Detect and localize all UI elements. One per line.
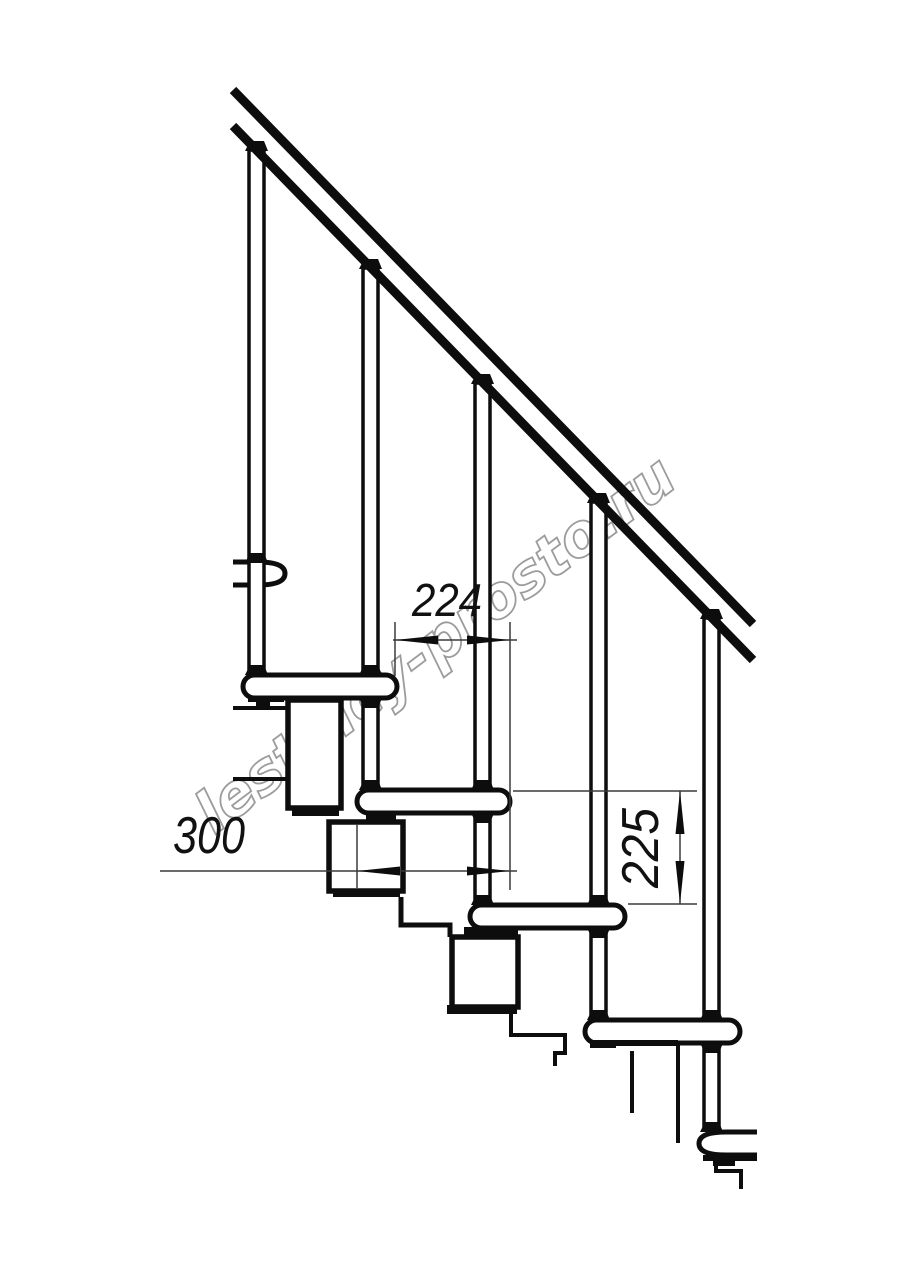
module-connector (447, 1005, 517, 1014)
module-tab (464, 927, 518, 937)
tread-6 (699, 1132, 757, 1155)
baluster-5 (704, 618, 719, 1020)
support-module (452, 937, 518, 1007)
baluster-4 (591, 502, 606, 905)
dimension-label-step-run: 224 (411, 574, 482, 626)
tread-bolt (704, 1043, 719, 1130)
module-connector (333, 889, 400, 897)
module-tab (616, 1040, 678, 1046)
tread-5 (585, 1020, 740, 1043)
tread-3 (357, 790, 510, 813)
tread-4 (470, 905, 625, 928)
tread-bolt (591, 928, 606, 1020)
module-tab (366, 813, 396, 821)
staircase-drawing: lestnicy-prosto.ru (0, 0, 914, 1280)
baluster-2 (363, 268, 378, 675)
dimension-label-riser-height: 225 (612, 807, 670, 889)
module-connector (292, 806, 339, 816)
tread-bolt (363, 698, 378, 790)
tread-2 (243, 675, 397, 698)
drawing-page: lestnicy-prosto.ru (0, 0, 914, 1280)
baluster-1 (249, 150, 264, 675)
dimension-label-tread-depth: 300 (173, 807, 245, 865)
support-module (329, 822, 403, 891)
module-tab (590, 1040, 616, 1048)
support-module (288, 700, 341, 808)
tread-bolt (475, 813, 490, 905)
